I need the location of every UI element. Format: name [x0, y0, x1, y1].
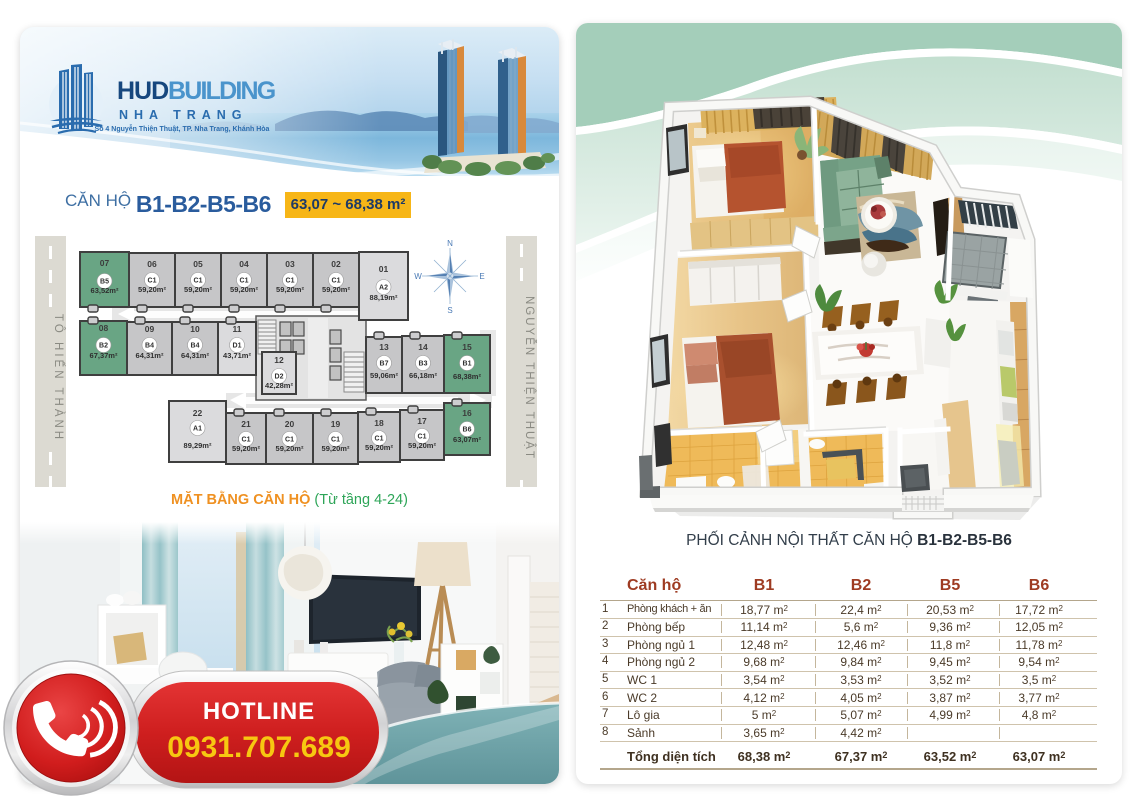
svg-text:E: E: [479, 272, 484, 281]
svg-text:22: 22: [193, 408, 203, 418]
svg-text:C1: C1: [285, 437, 294, 444]
svg-text:12: 12: [274, 355, 284, 365]
svg-text:B2: B2: [99, 343, 108, 350]
svg-text:18: 18: [374, 418, 384, 428]
svg-text:59,20m²: 59,20m²: [232, 444, 260, 453]
svg-text:59,06m²: 59,06m²: [370, 371, 398, 380]
svg-text:N: N: [447, 239, 453, 248]
svg-text:64,31m²: 64,31m²: [136, 351, 164, 360]
svg-text:D2: D2: [275, 374, 284, 381]
svg-text:C1: C1: [331, 437, 340, 444]
svg-text:20: 20: [285, 419, 295, 429]
svg-text:88,19m²: 88,19m²: [370, 293, 398, 302]
svg-text:08: 08: [99, 323, 109, 333]
svg-text:15: 15: [462, 342, 472, 352]
svg-text:59,20m²: 59,20m²: [276, 285, 304, 294]
svg-text:59,20m²: 59,20m²: [365, 443, 393, 452]
svg-text:63,52m²: 63,52m²: [91, 286, 119, 295]
svg-text:59,20m²: 59,20m²: [230, 285, 258, 294]
svg-text:A1: A1: [193, 426, 202, 433]
svg-text:10: 10: [190, 324, 200, 334]
svg-text:07: 07: [100, 258, 110, 268]
svg-text:59,20m²: 59,20m²: [138, 285, 166, 294]
svg-text:Số 4 Nguyễn Thiện Thuật, TP. N: Số 4 Nguyễn Thiện Thuật, TP. Nha Trang, …: [95, 124, 270, 133]
svg-text:03: 03: [285, 259, 295, 269]
svg-text:66,18m²: 66,18m²: [409, 371, 437, 380]
svg-text:C1: C1: [242, 437, 251, 444]
svg-text:64,31m²: 64,31m²: [181, 351, 209, 360]
svg-text:68,38m²: 68,38m²: [453, 372, 481, 381]
svg-text:59,20m²: 59,20m²: [408, 441, 436, 450]
svg-text:W: W: [414, 272, 422, 281]
svg-text:02: 02: [331, 259, 341, 269]
svg-text:09: 09: [145, 324, 155, 334]
svg-text:TÔ HIẾN THÀNH: TÔ HIẾN THÀNH: [52, 314, 65, 442]
svg-text:C1: C1: [332, 278, 341, 285]
svg-text:42,28m²: 42,28m²: [265, 381, 293, 390]
svg-text:B5: B5: [100, 279, 109, 286]
svg-text:B3: B3: [419, 361, 428, 368]
svg-text:05: 05: [193, 259, 203, 269]
svg-text:01: 01: [379, 264, 389, 274]
svg-text:B4: B4: [145, 343, 154, 350]
svg-text:0931.707.689: 0931.707.689: [167, 731, 351, 764]
svg-text:06: 06: [147, 259, 157, 269]
svg-text:S: S: [447, 306, 452, 315]
svg-text:HOTLINE: HOTLINE: [203, 698, 315, 725]
svg-text:BUILDING: BUILDING: [168, 77, 275, 105]
svg-text:21: 21: [241, 419, 251, 429]
svg-text:59,20m²: 59,20m²: [322, 444, 350, 453]
svg-text:13: 13: [379, 342, 389, 352]
svg-text:67,37m²: 67,37m²: [90, 351, 118, 360]
svg-text:59,20m²: 59,20m²: [322, 285, 350, 294]
svg-text:B1: B1: [463, 361, 472, 368]
svg-text:17: 17: [417, 416, 427, 426]
svg-text:HUD: HUD: [117, 77, 168, 105]
svg-text:D1: D1: [233, 343, 242, 350]
svg-text:C1: C1: [418, 434, 427, 441]
svg-text:B7: B7: [380, 361, 389, 368]
svg-text:11: 11: [233, 324, 242, 334]
svg-text:16: 16: [462, 408, 472, 418]
svg-text:A2: A2: [379, 285, 388, 292]
svg-text:NGUYỄN THIỆN THUẬT: NGUYỄN THIỆN THUẬT: [523, 296, 536, 460]
svg-text:C1: C1: [286, 278, 295, 285]
svg-text:63,07m²: 63,07m²: [453, 435, 481, 444]
svg-text:04: 04: [239, 259, 249, 269]
svg-text:C1: C1: [148, 278, 157, 285]
svg-text:59,20m²: 59,20m²: [184, 285, 212, 294]
svg-text:C1: C1: [240, 278, 249, 285]
svg-text:B6: B6: [463, 427, 472, 434]
svg-text:89,29m²: 89,29m²: [184, 441, 212, 450]
svg-text:C1: C1: [194, 278, 203, 285]
svg-text:59,20m²: 59,20m²: [276, 444, 304, 453]
svg-text:C1: C1: [375, 436, 384, 443]
svg-text:43,71m²: 43,71m²: [223, 351, 251, 360]
svg-text:NHA TRANG: NHA TRANG: [119, 108, 248, 122]
svg-text:19: 19: [331, 419, 341, 429]
svg-text:B4: B4: [191, 343, 200, 350]
svg-text:14: 14: [418, 342, 428, 352]
